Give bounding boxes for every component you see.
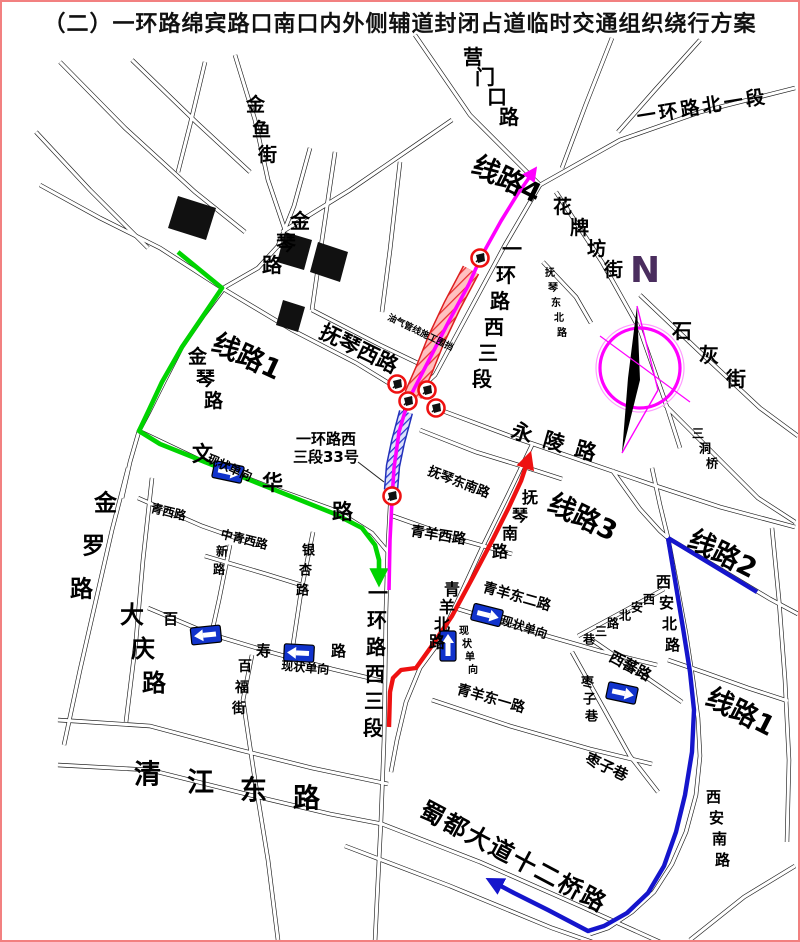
road-label-char: 路 <box>557 326 568 339</box>
road-label-char: 街 <box>603 258 623 281</box>
road-label-char: 枣 <box>580 674 595 690</box>
traffic-post-marker <box>428 400 445 417</box>
one-way-sign-qingyang-e <box>470 603 503 627</box>
road-label-char: 三 <box>595 625 607 639</box>
road-label-char: 金 <box>245 93 266 116</box>
detour-route-green <box>139 252 379 574</box>
compass-ring <box>600 328 680 408</box>
road-label-char: 西 <box>365 662 385 686</box>
traffic-post-marker <box>400 393 417 410</box>
road-label-char: 路 <box>492 542 509 561</box>
road-label-char: 环 <box>367 608 387 632</box>
road-label-char: 抚 <box>522 488 538 507</box>
road-label-char: 巷 <box>582 632 596 647</box>
page-title: （二）一环路绵宾路口南口内外侧辅道封闭占道临时交通组织绕行方案 <box>0 6 800 38</box>
road-label-char: 琴 <box>511 506 529 525</box>
road-label-char: 街 <box>725 367 746 391</box>
road-nw-grid-1 <box>60 62 245 232</box>
road-label-char: 路 <box>213 562 226 577</box>
road-label-char: 路 <box>204 389 224 412</box>
road-label-char: 牌 <box>570 216 589 239</box>
road-label-char: 巷 <box>584 708 599 724</box>
road-label-char: 西 <box>706 788 721 806</box>
road-label-char: 北 <box>554 311 564 324</box>
road-inner-block-n-3 <box>382 162 400 312</box>
road-label-char: 庆 <box>131 635 155 663</box>
road-label-char: 清 <box>134 760 161 791</box>
label-pointer <box>358 462 384 482</box>
road-inner-sandongqiao-rd <box>665 405 795 522</box>
road-label-char: 西 <box>643 593 655 607</box>
road-label-char: 北 <box>662 615 677 633</box>
road-label-char: 路 <box>366 635 387 659</box>
road-label: 蜀都大道十二桥路 <box>415 796 612 918</box>
road-label-char: 一 <box>502 237 522 261</box>
road-label: 线路1 <box>207 327 287 387</box>
road-label-char: 石 <box>671 319 692 343</box>
road-inner-qingjiangdong-upper <box>58 720 388 784</box>
road-label-char: 安 <box>709 809 724 827</box>
road-label-char: 路 <box>499 105 520 129</box>
road-label-char: 桥 <box>706 456 719 471</box>
road-label-char: 金 <box>289 209 311 233</box>
road-label-char: 现 <box>459 625 469 637</box>
compass-north-letter: N <box>630 250 660 291</box>
road-label-char: 洞 <box>699 442 711 456</box>
road-label-char: 一 <box>368 581 388 605</box>
traffic-detour-plan: （二）一环路绵宾路口南口内外侧辅道封闭占道临时交通组织绕行方案 N 营门口路线路… <box>0 0 800 942</box>
road-label-char: 路 <box>293 783 321 815</box>
road-label-char: 路 <box>490 289 511 313</box>
road-label-char: 状 <box>462 637 473 650</box>
road-label: 青羊西路 <box>409 522 468 548</box>
road-label-char: 杏 <box>299 562 313 578</box>
road-label-char: 路 <box>429 632 446 651</box>
compass-outer-ring <box>596 324 684 412</box>
road-label-char: 路 <box>70 575 94 602</box>
road-label-char: 西 <box>484 315 504 339</box>
road-label-char: 金 <box>187 345 208 368</box>
road-label-char: 路 <box>296 582 310 598</box>
traffic-post-marker <box>384 488 401 505</box>
road-inner-jinyu-st <box>235 55 285 230</box>
road-label-char: 段 <box>363 716 383 740</box>
road-label-char: 东 <box>240 775 267 807</box>
road-yongling-rd <box>435 408 795 527</box>
road-label-char: 单 <box>465 650 475 663</box>
road-label-char: 琴 <box>276 231 297 255</box>
road-label: 路 <box>331 642 347 660</box>
road-label-char: 路 <box>262 253 283 277</box>
road-label-char: 华 <box>262 471 283 495</box>
road-inner-shihui-st <box>640 295 798 436</box>
road-label-char: 青 <box>444 580 460 599</box>
road-label-char: 向 <box>468 663 478 676</box>
road-label: 抚琴东南路 <box>426 463 493 502</box>
road-label-char: 银 <box>302 542 316 558</box>
road-label-char: 灰 <box>699 343 719 367</box>
road-label-char: 环 <box>496 263 516 287</box>
road-inner-block-n-1 <box>312 152 335 310</box>
road-label-char: 大 <box>120 601 144 629</box>
road-inner-se-corner-rd <box>690 866 795 940</box>
road-label-char: 花 <box>553 195 572 218</box>
one-way-sign-zaozi <box>606 682 639 705</box>
detour-map: N 营门口路线路4金鱼街一环路北一段花牌坊街石灰街三洞桥一环路西三段抚琴东北路抚… <box>0 0 800 942</box>
road-label-char: 路 <box>715 851 731 869</box>
road-label-char: 三 <box>478 341 498 365</box>
road-label-char: 路 <box>665 636 681 654</box>
road-label-char: 南 <box>712 830 727 848</box>
road-label-char: 路 <box>607 616 620 631</box>
road-label-char: 坊 <box>587 237 606 260</box>
road-label-char: 金 <box>93 489 118 516</box>
road-label: 三段33号 <box>293 448 359 466</box>
road-label-char: 路 <box>142 669 167 697</box>
road-label-char: 南 <box>502 524 518 543</box>
road-label-char: 江 <box>187 768 214 799</box>
road-label: 线路4 <box>467 149 546 210</box>
road-label-char: 路 <box>332 500 354 524</box>
road-label-char: 琴 <box>195 368 216 390</box>
traffic-post-marker <box>472 250 489 267</box>
building-block <box>276 300 305 332</box>
road-label: 现状单向 <box>281 658 330 677</box>
road-label-char: 北 <box>619 608 631 623</box>
road-label: 线路3 <box>543 487 622 548</box>
traffic-post-marker <box>419 382 436 399</box>
road-label: 现状单向 <box>499 612 549 641</box>
road-label-char: 抚 <box>545 266 555 279</box>
road-label-char: 福 <box>234 679 249 696</box>
road-label: 一环路西 <box>296 430 356 448</box>
road-label-char: 三 <box>364 689 384 713</box>
road-label: 青西路 <box>149 500 189 524</box>
road-label-char: 安 <box>659 594 674 612</box>
road-label: 西蕃路 <box>606 648 655 685</box>
road-label-char: 西 <box>656 573 671 591</box>
road-label-char: 东 <box>551 296 561 309</box>
traffic-post-marker <box>389 376 406 393</box>
road-label-char: 羊 <box>439 597 455 616</box>
one-way-sign-baishou-w <box>190 625 222 645</box>
road-label-char: 安 <box>631 600 643 615</box>
road-label: 百 <box>163 610 178 628</box>
road-label-char: 街 <box>257 143 277 166</box>
road-label-char: 百 <box>238 659 252 675</box>
road-label-char: 三 <box>692 427 704 441</box>
road-label: 线路1 <box>701 681 780 743</box>
road-label: 寿 <box>256 642 271 660</box>
road-label-char: 街 <box>231 700 246 717</box>
road-label-char: 鱼 <box>252 118 271 141</box>
road-label: 线路2 <box>683 523 762 585</box>
road-label-char: 琴 <box>547 282 558 294</box>
road-label-char: 罗 <box>82 533 105 559</box>
road-label-char: 新 <box>216 544 228 559</box>
road-label-char: 段 <box>472 367 492 391</box>
road-label-char: 子 <box>583 692 596 707</box>
road-inner-nw-grid-4 <box>178 62 205 172</box>
road-label-char: 北 <box>434 615 450 634</box>
